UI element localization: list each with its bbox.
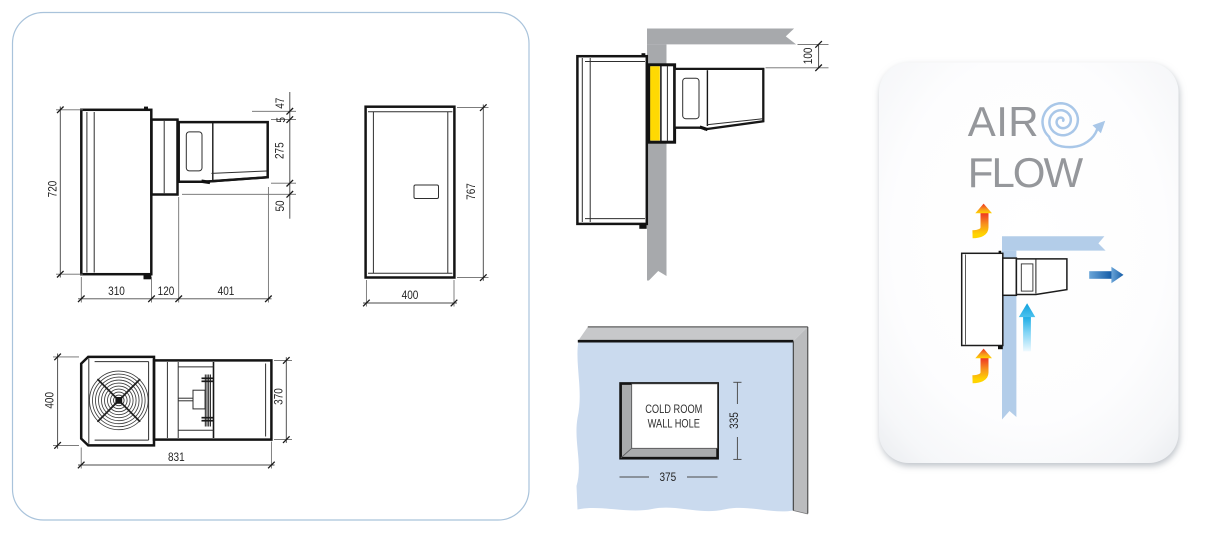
svg-text:370: 370 [273,388,286,405]
svg-text:401: 401 [218,285,235,298]
svg-text:400: 400 [402,289,419,302]
svg-text:400: 400 [44,392,57,409]
svg-text:375: 375 [659,471,676,484]
svg-text:50: 50 [274,200,287,211]
svg-text:FLOW: FLOW [968,149,1084,196]
svg-text:831: 831 [168,451,185,464]
svg-text:310: 310 [108,285,125,298]
svg-text:5: 5 [275,117,288,123]
svg-text:100: 100 [802,48,815,65]
svg-text:WALL HOLE: WALL HOLE [648,417,700,431]
svg-text:275: 275 [274,142,287,159]
svg-text:AIR: AIR [968,98,1039,145]
svg-text:47: 47 [274,98,287,109]
svg-text:COLD ROOM: COLD ROOM [645,403,702,417]
svg-text:120: 120 [158,285,175,298]
svg-text:767: 767 [465,183,478,200]
svg-text:720: 720 [47,181,60,198]
svg-text:335: 335 [728,412,741,429]
